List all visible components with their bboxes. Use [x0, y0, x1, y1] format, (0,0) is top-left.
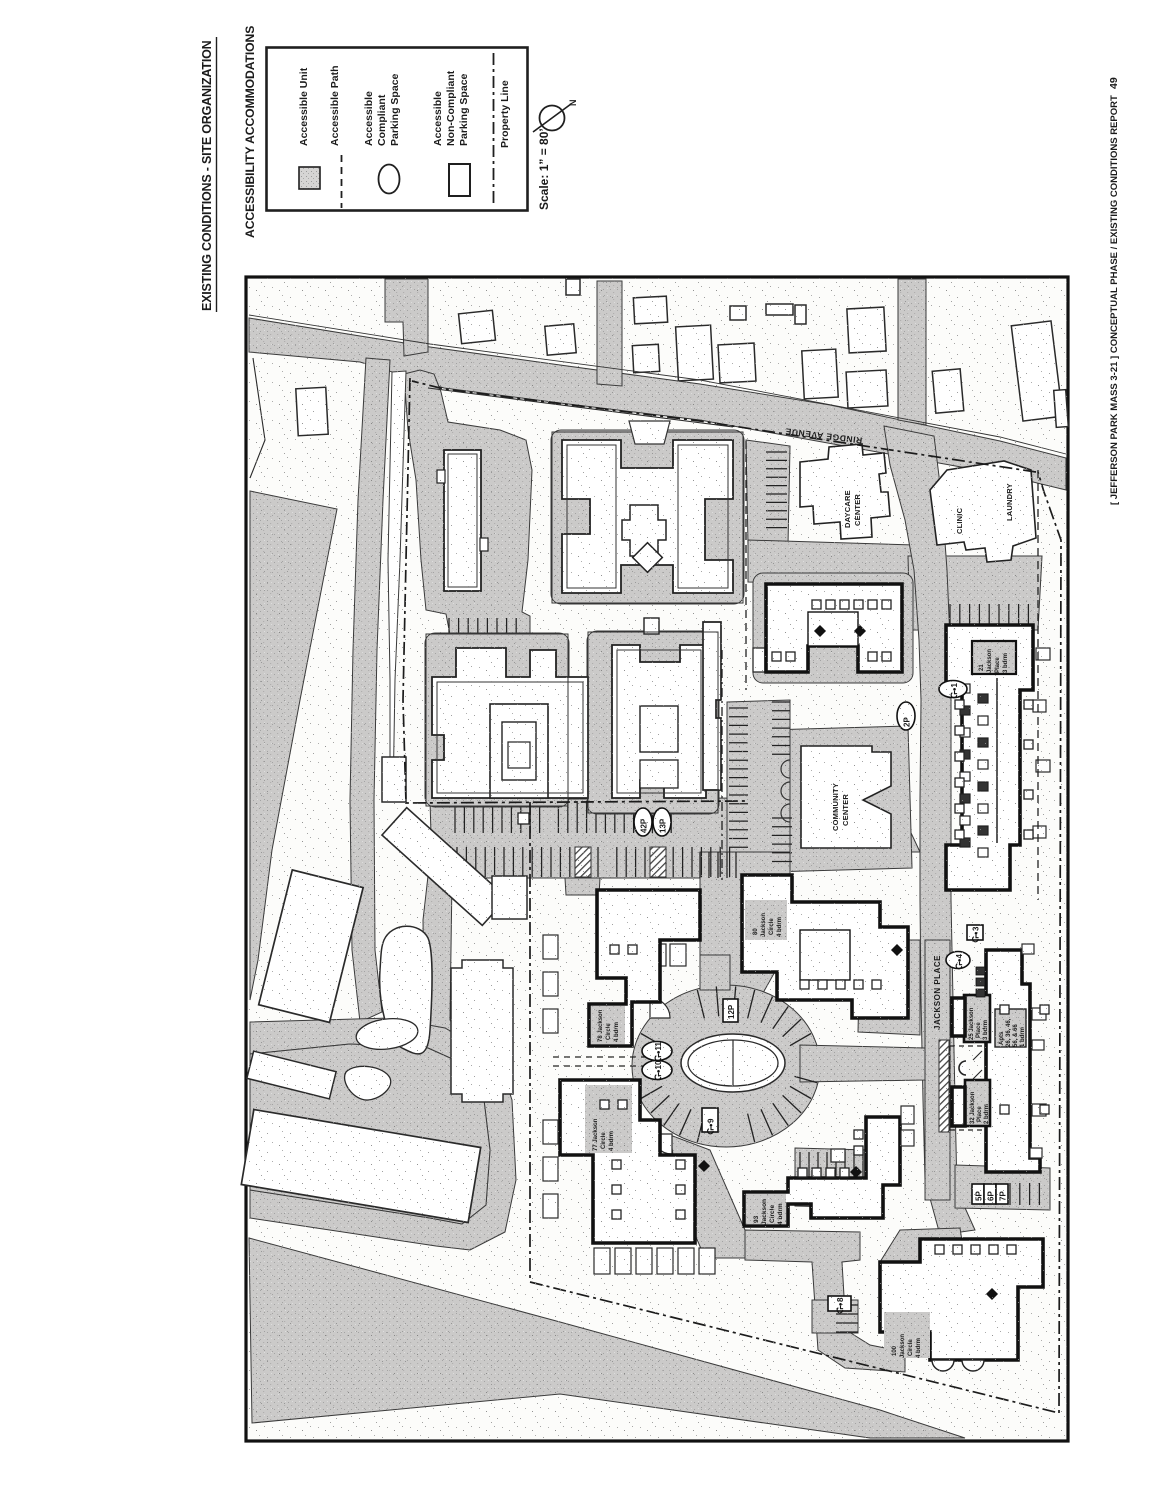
svg-text:Compliant: Compliant	[376, 94, 388, 146]
svg-text:N: N	[568, 100, 578, 107]
svg-text:Parking Space: Parking Space	[458, 73, 470, 146]
svg-text:EXISTING CONDITIONS - SITE ORG: EXISTING CONDITIONS - SITE ORGANIZATION	[200, 40, 214, 311]
svg-text:ACCESSIBILITY ACCOMMODATIONS: ACCESSIBILITY ACCOMMODATIONS	[243, 26, 257, 238]
svg-text:Accessible: Accessible	[363, 91, 375, 146]
svg-text:49: 49	[1108, 77, 1120, 89]
svg-text:Non-Compliant: Non-Compliant	[445, 70, 457, 146]
svg-text:Accessible Path: Accessible Path	[329, 65, 341, 146]
svg-text:Scale: 1” = 80’: Scale: 1” = 80’	[537, 128, 551, 210]
svg-text:Accessible: Accessible	[432, 91, 444, 146]
svg-text:[ JEFFERSON PARK MASS 3-21 ] C: [ JEFFERSON PARK MASS 3-21 ] CONCEPTUAL …	[1109, 95, 1120, 505]
svg-text:Parking Space: Parking Space	[389, 73, 401, 146]
svg-text:Property Line: Property Line	[499, 80, 511, 148]
svg-text:Accessible Unit: Accessible Unit	[298, 67, 310, 146]
